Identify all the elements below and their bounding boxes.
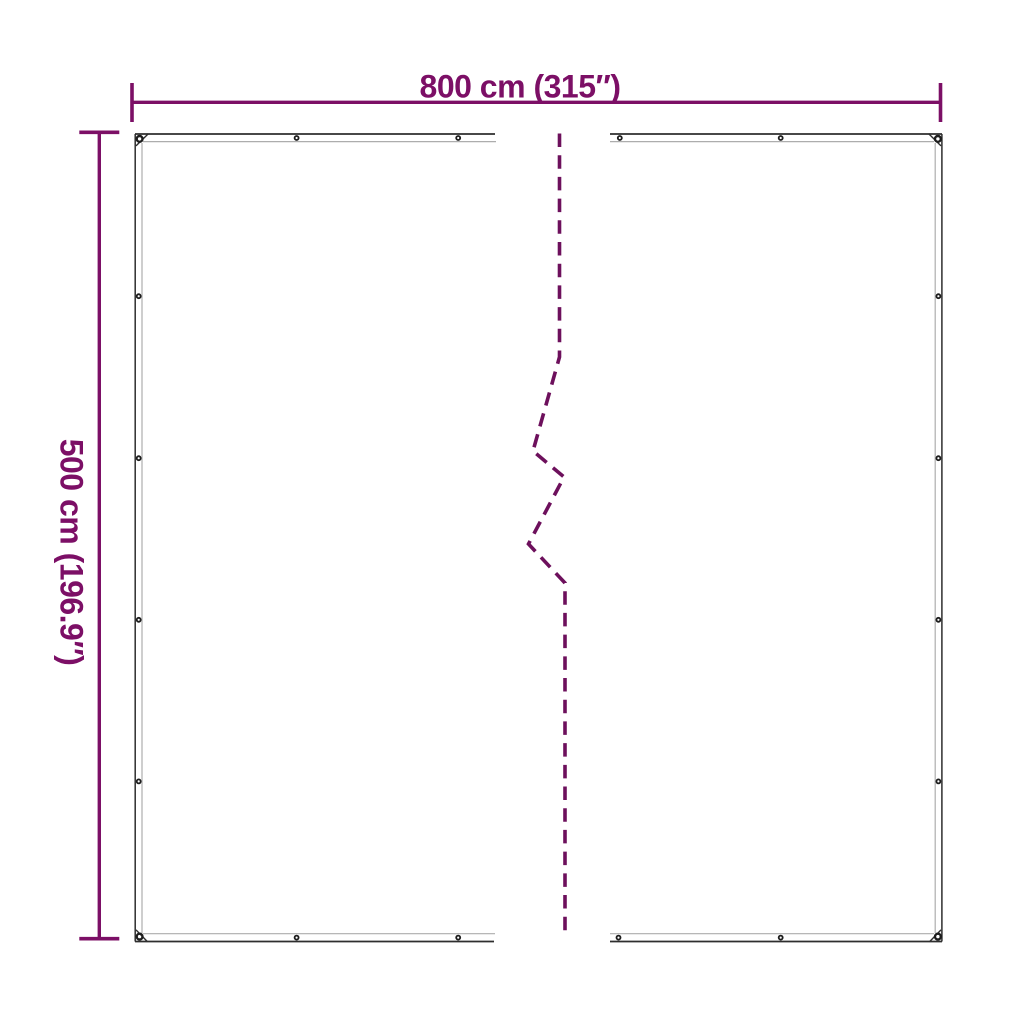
svg-text:500 cm (196.9″): 500 cm (196.9″)	[54, 439, 90, 666]
svg-text:800 cm (315″): 800 cm (315″)	[420, 69, 621, 105]
